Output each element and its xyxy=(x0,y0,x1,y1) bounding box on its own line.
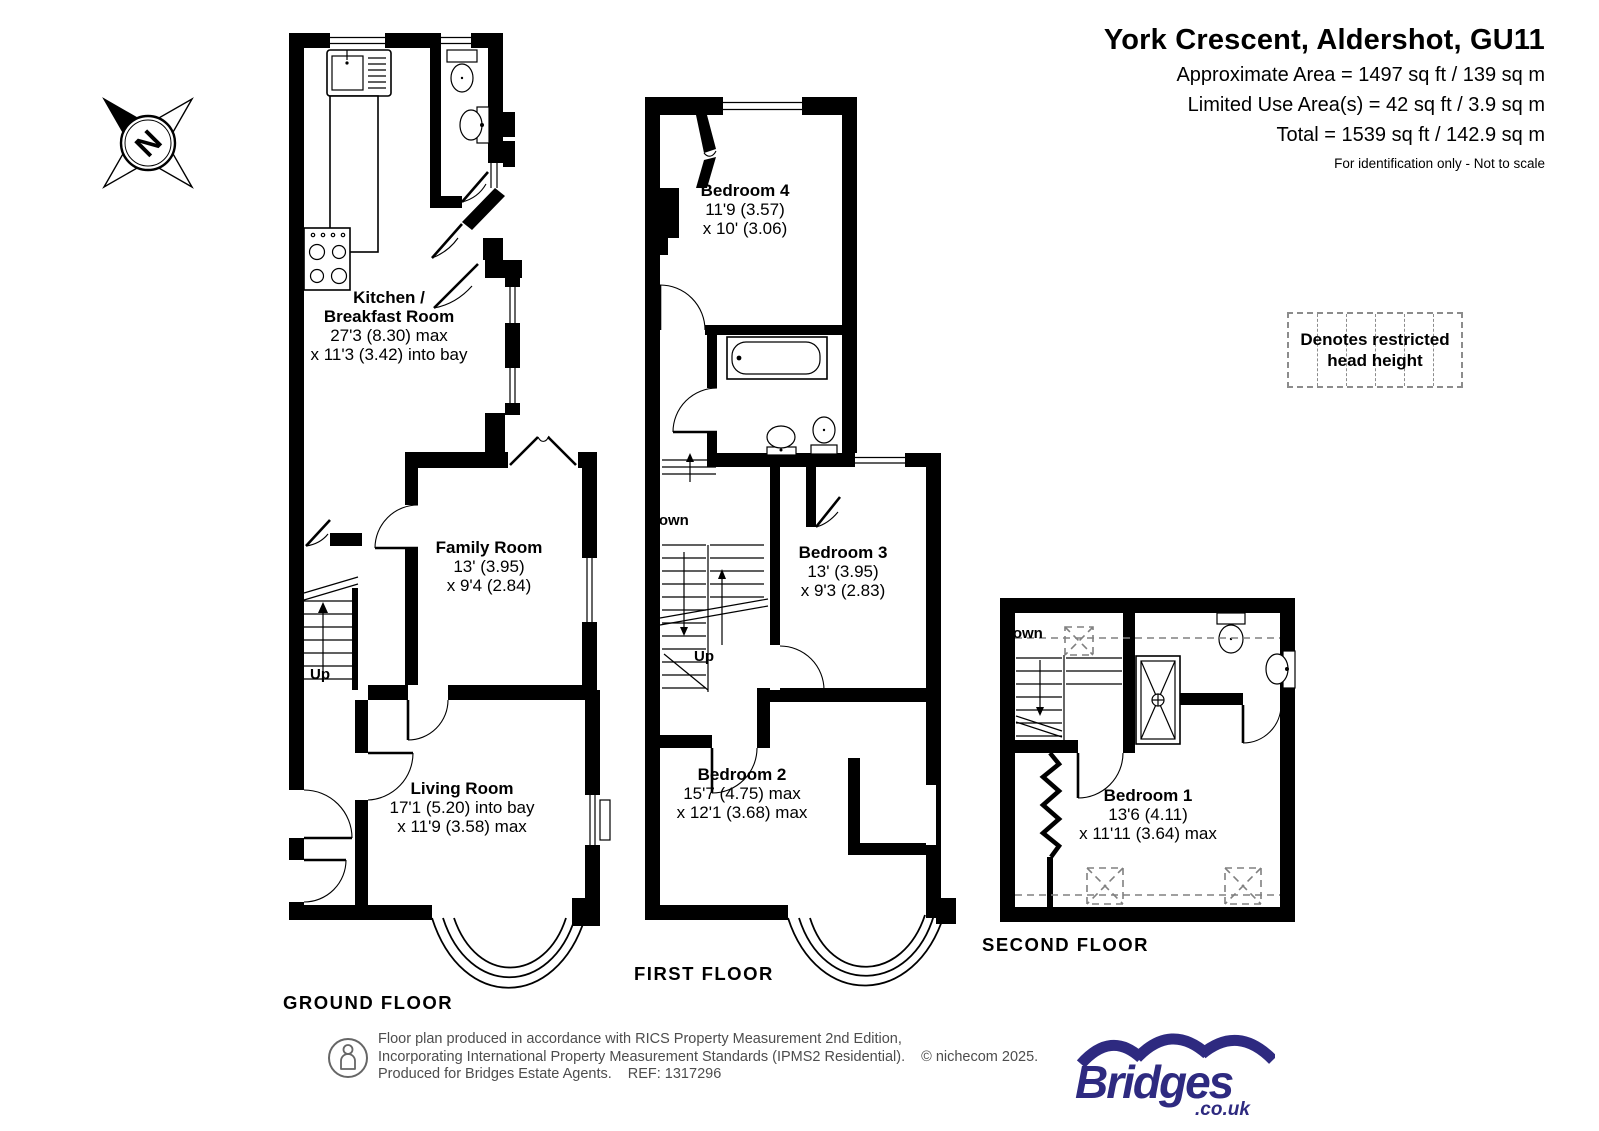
stairs xyxy=(660,453,768,692)
bath-icon xyxy=(727,337,827,379)
kitchen-sink-icon xyxy=(327,50,391,96)
room-label-bedroom-4: Bedroom 4 11'9 (3.57) x 10' (3.06) xyxy=(701,181,790,238)
stairs-down-label-first: Down xyxy=(648,512,689,529)
bay-window xyxy=(788,915,944,986)
stairs-down-label-second: Down xyxy=(1002,625,1043,642)
room-label-bedroom-1: Bedroom 1 13'6 (4.11) x 11'11 (3.64) max xyxy=(1079,786,1217,843)
toilet-icon xyxy=(811,417,837,454)
first-floor-label: FIRST FLOOR xyxy=(634,963,774,985)
approximate-area: Approximate Area = 1497 sq ft / 139 sq m xyxy=(1104,64,1545,87)
ground-floor-plan xyxy=(270,20,620,1025)
bay-window xyxy=(432,918,585,988)
basin-icon xyxy=(1266,651,1295,688)
footer-disclaimer: Floor plan produced in accordance with R… xyxy=(378,1031,1038,1084)
footer-line-2: Incorporating International Property Mea… xyxy=(378,1049,905,1067)
bridges-logo-suffix: .co.uk xyxy=(1195,1099,1251,1118)
page-title: York Crescent, Aldershot, GU11 xyxy=(1104,24,1545,57)
walls xyxy=(1000,598,1295,922)
footer-line-1: Floor plan produced in accordance with R… xyxy=(378,1031,902,1049)
second-floor-label: SECOND FLOOR xyxy=(982,934,1149,956)
room-label-living-room: Living Room 17'1 (5.20) into bay x 11'9 … xyxy=(389,779,534,836)
limited-use-area: Limited Use Area(s) = 42 sq ft / 3.9 sq … xyxy=(1104,94,1545,117)
person-icon xyxy=(326,1036,370,1080)
shower-icon xyxy=(1136,656,1180,744)
toilet-icon xyxy=(1217,613,1245,653)
room-label-family-room: Family Room 13' (3.95) x 9'4 (2.84) xyxy=(436,538,543,595)
stairs xyxy=(1016,655,1122,741)
basin-icon xyxy=(767,426,796,455)
total-area: Total = 1539 sq ft / 142.9 sq m xyxy=(1104,124,1545,147)
windows xyxy=(723,97,905,467)
room-label-bedroom-2: Bedroom 2 15'7 (4.75) max x 12'1 (3.68) … xyxy=(677,765,808,822)
floorplan-page: York Crescent, Aldershot, GU11 Approxima… xyxy=(0,0,1599,1131)
ground-floor-label: GROUND FLOOR xyxy=(283,992,453,1014)
second-floor-plan xyxy=(985,590,1300,965)
room-label-kitchen: Kitchen / Breakfast Room 27'3 (8.30) max… xyxy=(311,288,468,364)
restricted-head-height-legend: Denotes restricted head height xyxy=(1287,312,1463,388)
first-floor-plan xyxy=(625,80,965,1025)
header: York Crescent, Aldershot, GU11 Approxima… xyxy=(1104,24,1545,171)
identification-note: For identification only - Not to scale xyxy=(1104,156,1545,171)
stairs xyxy=(304,577,358,679)
copyright: © nichecom 2025. xyxy=(921,1049,1038,1067)
compass-icon: N xyxy=(90,85,206,201)
eaves-zigzag-wall xyxy=(1043,753,1059,857)
reference-number: REF: 1317296 xyxy=(628,1066,722,1084)
basin-icon xyxy=(460,107,489,143)
room-label-bedroom-3: Bedroom 3 13' (3.95) x 9'3 (2.83) xyxy=(799,543,888,600)
bridges-logo: Bridges .co.uk xyxy=(1075,1028,1275,1118)
toilet-icon xyxy=(447,50,477,92)
legend-text: Denotes restricted head height xyxy=(1289,314,1461,371)
stairs-up-label-ground: Up xyxy=(310,666,330,683)
stairs-up-label-first: Up xyxy=(694,648,714,665)
stove-icon xyxy=(304,228,350,290)
footer-line-3: Produced for Bridges Estate Agents. xyxy=(378,1066,612,1084)
